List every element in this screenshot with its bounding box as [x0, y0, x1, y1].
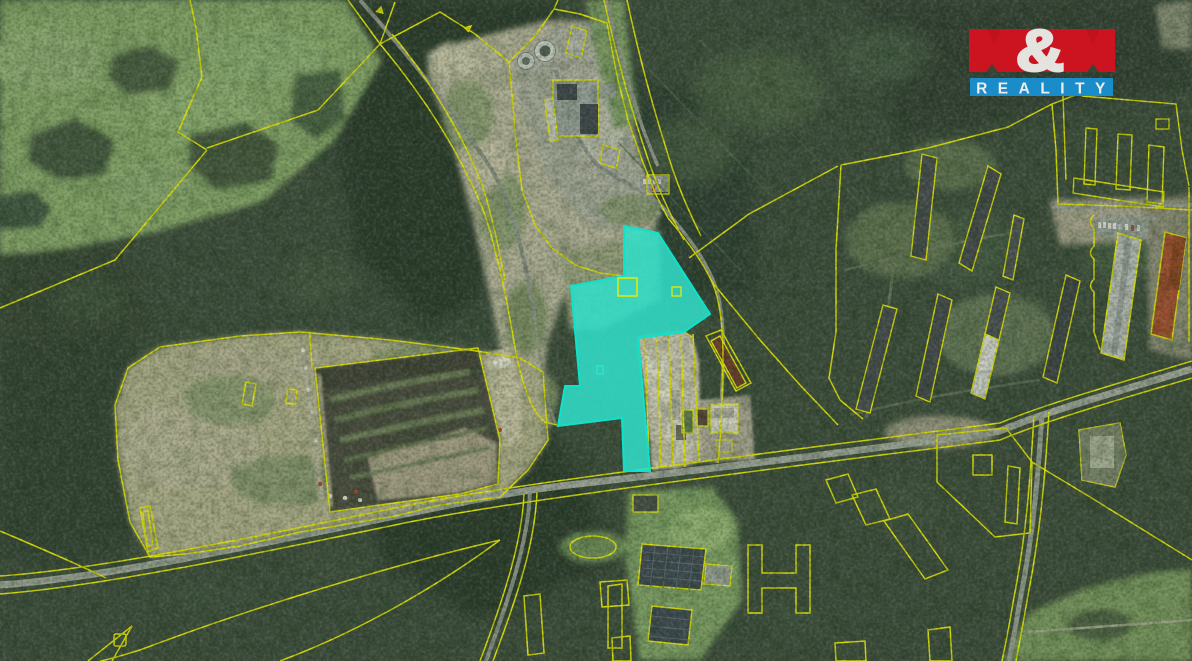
svg-text:REALITY: REALITY — [976, 81, 1116, 98]
svg-text:&: & — [1016, 19, 1064, 84]
